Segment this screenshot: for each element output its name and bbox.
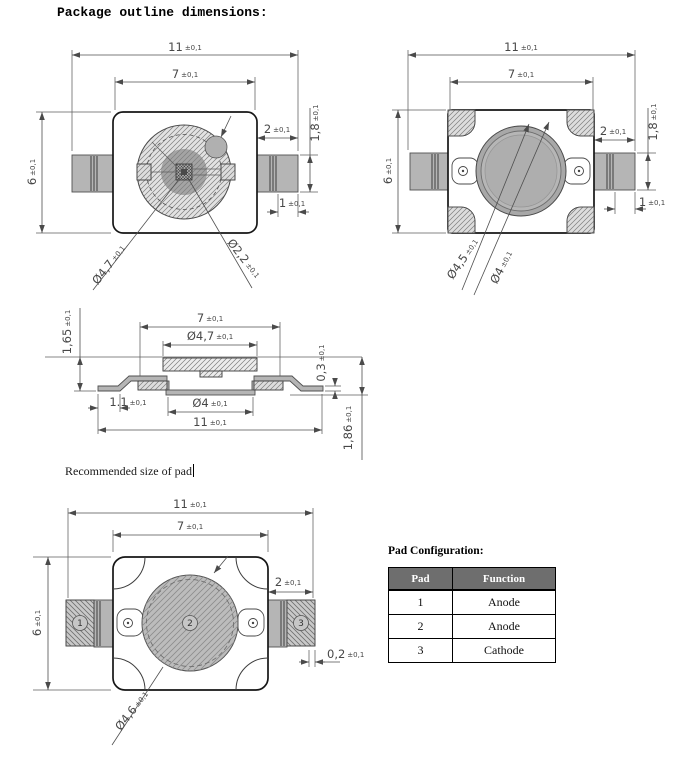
pad-number-1: 1 [77, 619, 83, 629]
dim-overall-height: 1,86±0,1 [341, 406, 355, 451]
drawing-side-view: 7±0,1 Ø4,7±0,1 1.1±0,1 Ø4±0,1 11±0,1 1,6… [45, 308, 368, 460]
dim-foot-length: 1.1±0,1 [109, 395, 146, 409]
dim-overall-height: 6±0,1 [381, 158, 395, 184]
page: Package outline dimensions: [0, 0, 683, 761]
right-lead [594, 153, 635, 190]
recommended-pad-note: Recommended size of pad [65, 464, 194, 479]
right-lead [257, 155, 298, 192]
dim-pad-diameter: Ø4,6±0,1 [112, 688, 152, 733]
dim-overall-width: 11±0,1 [168, 40, 202, 54]
drawing-top-view-lens: 11±0,1 7±0,1 6±0,1 2±0,1 1,8±0,1 1±0,1 Ø… [381, 40, 665, 295]
table-row: 3 Cathode [389, 639, 556, 663]
lens [476, 126, 566, 216]
dim-body-width: 7±0,1 [508, 67, 534, 81]
pad-configuration-table: Pad Function 1 Anode 2 Anode 3 Cathode [388, 567, 556, 663]
text-caret [193, 464, 195, 477]
dim-plate-thickness: 0,3±0,1 [314, 344, 328, 381]
pad-configuration-section: Pad Configuration: Pad Function 1 Anode … [388, 545, 566, 663]
left-lead [410, 153, 448, 190]
cell-pad: 1 [389, 590, 453, 615]
dim-overall-width: 11±0,1 [193, 415, 227, 429]
dim-overall-width: 11±0,1 [173, 497, 207, 511]
heat-slug-plate [163, 358, 257, 377]
marker-dot [205, 136, 227, 158]
pad-number-2: 2 [187, 619, 193, 629]
dim-body-width: 7±0,1 [177, 519, 203, 533]
dim-slug-diameter: Ø4±0,1 [192, 396, 227, 410]
left-lead [72, 155, 113, 192]
header-pad: Pad [389, 568, 453, 591]
lead-profile [98, 376, 323, 395]
table-header-row: Pad Function [389, 568, 556, 591]
dim-overall-height: 6±0,1 [25, 159, 39, 185]
dim-lead-length: 2±0,1 [275, 575, 301, 589]
dim-lead-tip: 1±0,1 [639, 195, 665, 209]
header-function: Function [453, 568, 556, 591]
cell-function: Anode [453, 615, 556, 639]
drawing-pad-layout: 1 2 3 11±0,1 7±0,1 6±0,1 2±0,1 0,2±0,1 Ø… [30, 497, 364, 745]
outline-drawings: 11±0,1 7±0,1 6±0,1 2±0,1 1,8±0,1 1±0,1 Ø… [0, 0, 683, 761]
cell-pad: 3 [389, 639, 453, 663]
recommended-pad-label: Recommended size of pad [65, 464, 192, 478]
dim-overall-height: 6±0,1 [30, 610, 44, 636]
dim-lead-length: 2±0,1 [264, 122, 290, 136]
pad-number-3: 3 [298, 619, 304, 629]
dim-lens-diameter: Ø4,7±0,1 [187, 329, 233, 343]
cell-function: Cathode [453, 639, 556, 663]
dim-standoff-height: 1,65±0,1 [60, 310, 74, 355]
dim-lens-outer: Ø4,5±0,1 [444, 236, 482, 282]
dim-body-width: 7±0,1 [197, 311, 223, 325]
drawing-top-view-die: 11±0,1 7±0,1 6±0,1 2±0,1 1,8±0,1 1±0,1 Ø… [25, 40, 322, 290]
cell-function: Anode [453, 590, 556, 615]
dim-lead-tip: 1±0,1 [279, 196, 305, 210]
cell-pad: 2 [389, 615, 453, 639]
dim-overall-width: 11±0,1 [504, 40, 538, 54]
dim-lead-length: 2±0,1 [600, 124, 626, 138]
dim-body-width: 7±0,1 [172, 67, 198, 81]
pad-configuration-title: Pad Configuration: [388, 545, 566, 557]
dim-pad-clearance: 0,2±0,1 [327, 647, 364, 661]
dim-lens-inner: Ø4±0,1 [487, 248, 516, 286]
solder-pads [138, 381, 283, 390]
table-row: 2 Anode [389, 615, 556, 639]
dim-lens-diameter: Ø4,7±0,1 [89, 242, 129, 287]
table-row: 1 Anode [389, 590, 556, 615]
